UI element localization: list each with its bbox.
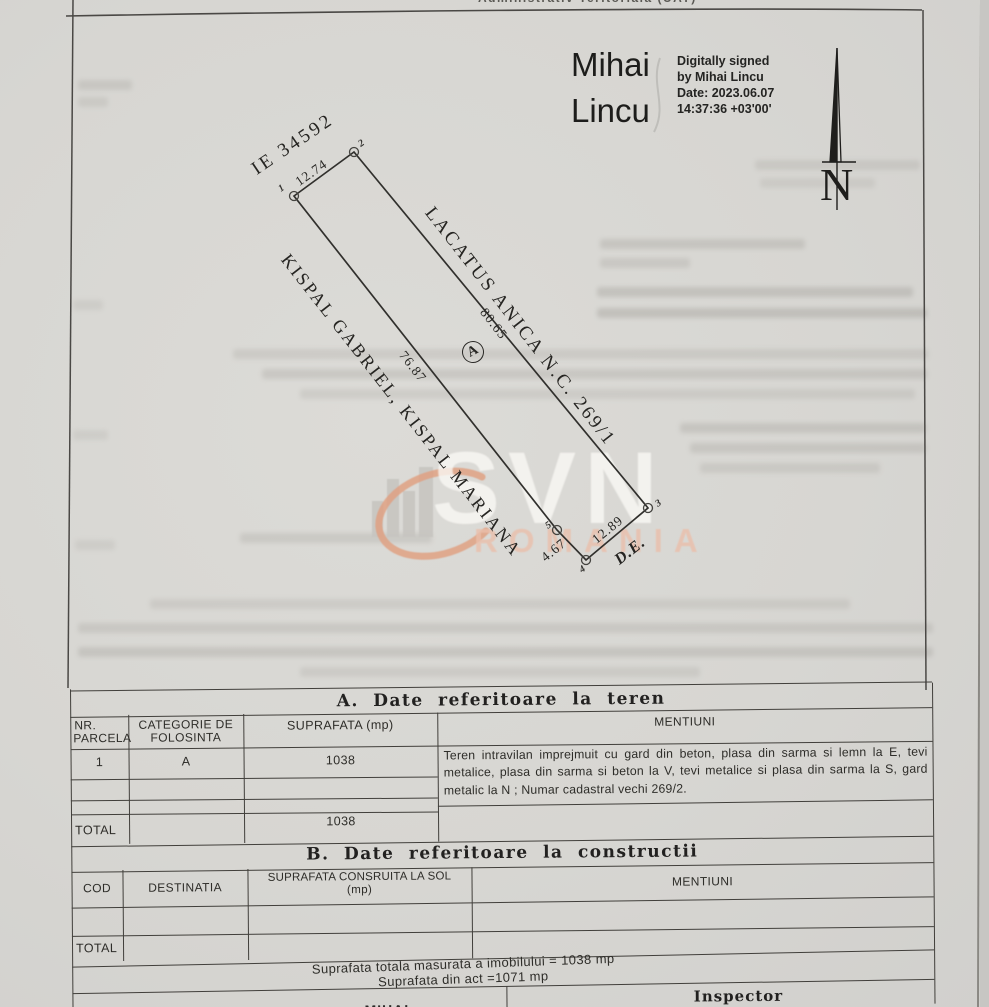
signature-detail-line: by Mihai Lincu: [677, 69, 774, 85]
cell-suprafata: 1038: [244, 752, 438, 768]
col-header-suprafata-constr: SUPRAFATA CONSRUITA LA SOL: [247, 870, 471, 884]
section-b-title: B. Date referitoare la constructii: [71, 840, 933, 867]
col-header-folosinta: FOLOSINTA: [128, 730, 243, 745]
col-header-mentiuni-a: MENTIUNI: [437, 713, 932, 731]
cadastral-tables: A. Date referitoare la teren NR. PARCELA…: [66, 683, 936, 1007]
cell-mentiuni-text: Teren intravilan imprejmuit cu gard din …: [443, 744, 927, 800]
signature-detail-line: 14:37:36 +03'00': [677, 101, 774, 117]
signature-detail-line: Digitally signed: [677, 53, 774, 69]
col-header-cod: COD: [72, 881, 123, 895]
col-header-suprafata-constr-mp: (mp): [248, 883, 472, 897]
clipped-top-table-text: Administrativ Teritoriala (UAT): [478, 0, 697, 5]
inspector-label: Inspector: [568, 986, 908, 1007]
cell-nr-parcela: 1: [71, 755, 129, 769]
total-suprafata-a: 1038: [244, 813, 438, 829]
col-header-suprafata: SUPRAFATA (mp): [243, 717, 437, 733]
col-header-mentiuni-b: MENTIUNI: [471, 873, 933, 891]
signature-details: Digitally signed by Mihai Lincu Date: 20…: [677, 53, 774, 117]
clipped-signer-name-bottom: MIHAI: [364, 1002, 409, 1007]
total-label-b: TOTAL: [76, 941, 117, 955]
parcel-letter: A: [465, 343, 481, 362]
signature-detail-line: Date: 2023.06.07: [677, 85, 774, 101]
signer-name-line1: Mihai: [571, 42, 650, 88]
scanned-cadastral-document: SVN ROMANIA Administrativ Teritoriala (U…: [0, 0, 989, 1007]
cell-categorie: A: [129, 754, 244, 769]
north-label: N: [820, 158, 853, 211]
col-header-parcela: PARCELA: [73, 731, 131, 745]
col-header-destinatia: DESTINATIA: [123, 880, 248, 895]
total-label-a: TOTAL: [75, 823, 116, 837]
